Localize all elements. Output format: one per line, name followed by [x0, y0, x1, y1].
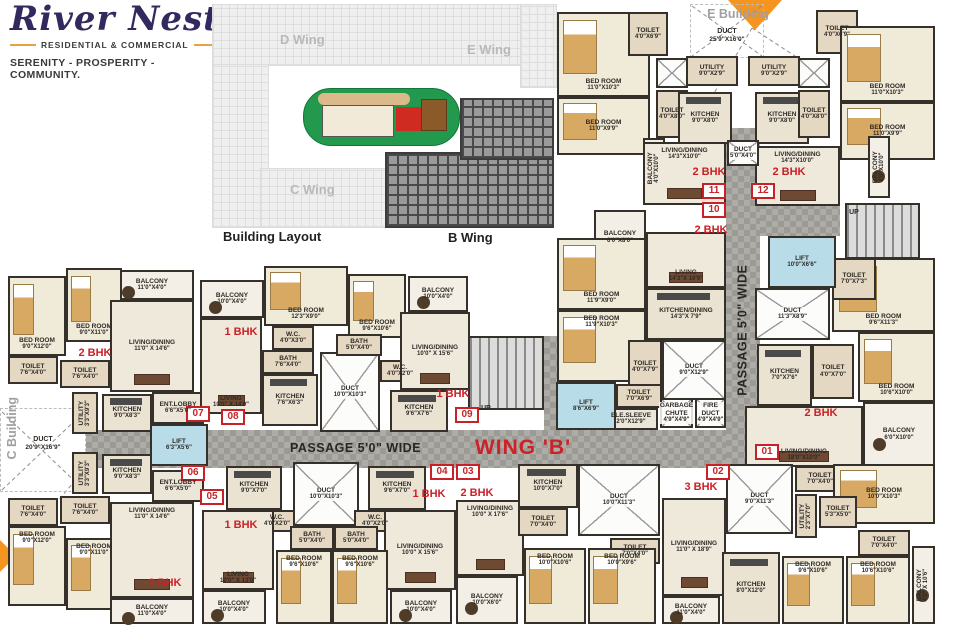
liv-living-dining: LIVING/DINING11'0" X 18'9"	[662, 498, 726, 596]
bal-balcony: BALCONY11'0"X4'0"	[662, 596, 720, 624]
duct-duct: DUCT9'0"X11'3"	[726, 464, 793, 534]
stair	[468, 336, 544, 410]
unit-badge-11: 11	[702, 183, 726, 199]
kit-kitchen: KITCHEN8'0"X12'0"	[722, 552, 780, 624]
duct-garbage-chute: GARBAGE CHUTE4'9"X4'9"	[660, 398, 693, 428]
kit-kitchen: KITCHEN10'0"X7'0"	[518, 464, 578, 508]
toi-w-c: W.C.4'0"X3'0"	[272, 326, 314, 350]
txt-1-bhk: 1 BHK	[430, 387, 476, 401]
unit-badge-12: 12	[751, 183, 775, 199]
toi-utility: UTILITY3'3"X9'3"	[72, 392, 98, 434]
floor-plan: BED ROOM11'0"X10'3"TOILET4'0"X6'9"BED RO…	[0, 0, 957, 625]
unit-badge-09: 09	[455, 407, 479, 423]
txt-up: UP	[476, 404, 496, 415]
liv-living-dining: LIVING/DINING10'0" X 15'6"	[400, 312, 470, 390]
liv-living-dining: LIVING/DINING10'0" X 15'6"	[384, 510, 456, 590]
bal-balcony: BALCONY10'0"X4'0"	[200, 280, 264, 318]
bal-balcony: BALCONY6'0"X10'0"	[863, 402, 935, 467]
bed-bed-room: BED ROOM10'6"X10'0"	[858, 332, 935, 402]
kit-kitchen: KITCHEN9'0"X7'0"	[226, 466, 282, 510]
unit-badge-05: 05	[200, 489, 224, 505]
toi-bath: BATH7'6"X4'0"	[262, 350, 314, 374]
kit-kitchen: KITCHEN7'6"X6'3"	[262, 374, 318, 426]
bal-balcony: BALCONY10'0"X4'0"	[390, 590, 452, 624]
lift-lift: LIFT8'6"X6'9"	[556, 382, 616, 430]
toi-toilet: TOILET7'0"X4'0"	[858, 530, 910, 556]
toi-toilet: TOILET7'0"X4'0"	[518, 508, 568, 536]
toi-toilet: TOILET7'6"X4'0"	[60, 496, 110, 524]
bal-balcony: BALCONY4'0"X10'0"	[868, 136, 890, 198]
toi-utility: UTILITY9'0"X2'9"	[748, 56, 800, 86]
bal-balcony: BALCONY10'0"X6'0"	[456, 576, 518, 624]
kit-kitchen: KITCHEN9'0"X8'3"	[102, 394, 152, 432]
unit-badge-10: 10	[702, 202, 726, 218]
lift-lift: LIFT10'0"X6'6"	[768, 236, 836, 288]
txt-2-bhk: 2 BHK	[764, 165, 814, 179]
bed-bed-room: BED ROOM9'6"X10'6"	[782, 556, 844, 624]
bal-balcony: BALCONY4'0" X 10'6"	[912, 546, 935, 624]
bed-bed-room: BED ROOM11'0"X9'9"	[557, 97, 650, 155]
bal-balcony: BALCONY11'0"X4'0"	[110, 270, 194, 300]
txt-2-bhk: 2 BHK	[796, 406, 846, 420]
txt-1-bhk: 1 BHK	[218, 325, 264, 339]
txt-c-building: C Building	[0, 420, 52, 436]
bed-bed-room: BED ROOM10'0"X9'6"	[588, 548, 656, 624]
duct-fire-duct: FIRE DUCT4'9"X4'9"	[695, 398, 726, 428]
txt-wing-b: WING 'B'	[463, 430, 583, 466]
bed-bed-room: BED ROOM10'6"X10'6"	[846, 556, 910, 624]
kit-kitchen: KITCHEN9'0"X8'0"	[678, 92, 732, 144]
bal-balcony: BALCONY10'0"X4'0"	[408, 276, 468, 312]
bed-bed-room: BED ROOM9'6"X10'6"	[276, 550, 332, 624]
unit-badge-03: 03	[456, 464, 480, 480]
kit-kitchen: KITCHEN9'0"X8'3"	[102, 454, 152, 494]
duct-duct: DUCT11'3"X8'9"	[755, 288, 830, 340]
duct	[656, 58, 688, 88]
txt-3-bhk: 3 BHK	[676, 480, 726, 494]
duct	[798, 58, 830, 88]
toi-toilet: TOILET7'0"X7'3"	[832, 258, 876, 300]
txt-passage-5-0-wide: PASSAGE 5'0" WIDE	[728, 250, 758, 410]
duct-duct: DUCT10'0"X10'3"	[320, 352, 380, 432]
txt-2-bhk: 2 BHK	[452, 486, 502, 500]
bal-balcony: BALCONY11'0"X4'0"	[110, 598, 194, 624]
liv-living-dining: LIVING/DINING10'0" X 17'6"	[456, 500, 524, 576]
toi-bath: BATH5'0"X4'0"	[290, 526, 334, 550]
liv-living: LIVING14'3"X 10'9"	[646, 232, 726, 288]
toi-toilet: TOILET4'0"X7'0"	[812, 344, 854, 399]
txt-passage-5-0-wide: PASSAGE 5'0" WIDE	[288, 436, 423, 460]
toi-utility: UTILITY9'0"X2'9"	[686, 56, 738, 86]
txt-2-bhk: 2 BHK	[70, 346, 120, 360]
unit-badge-04: 04	[430, 464, 454, 480]
floor-plan-poster: River Nest RESIDENTIAL & COMMERCIAL SERE…	[0, 0, 957, 625]
toi-toilet: TOILET7'0"X6'9"	[616, 384, 662, 408]
txt-e-building: E Building	[698, 6, 778, 22]
toi-toilet: TOILET5'3"X5'0"	[819, 496, 857, 528]
toi-bath: BATH5'0"X4'0"	[336, 334, 382, 356]
duct-duct: DUCT9'0"X12'9"	[662, 340, 726, 400]
bed-bed-room: BED ROOM11'9"X9'0"	[557, 238, 646, 310]
unit-badge-08: 08	[221, 409, 245, 425]
txt-2-bhk: 2 BHK	[686, 223, 736, 237]
lift-lift: LIFT6'3"X5'6"	[150, 424, 208, 466]
txt-2-bhk: 2 BHK	[684, 165, 734, 179]
liv-living-dining: LIVING/DINING11'0" X 14'6"	[110, 300, 194, 392]
bed-bed-room: BED ROOM9'6"X10'6"	[348, 274, 406, 338]
toi-utility: UTILITY2'3"X7'0"	[795, 494, 817, 538]
txt-duct: DUCT25'9"X16'0"	[692, 24, 762, 48]
unit-badge-02: 02	[706, 464, 730, 480]
toi-utility: UTILITY3'3"X9'3"	[72, 452, 98, 494]
bed-bed-room: BED ROOM11'0"X10'3"	[840, 26, 935, 102]
bed-bed-room: BED ROOM9'6"X10'6"	[332, 550, 388, 624]
bed-bed-room: BED ROOM9'0"X12'0"	[8, 526, 66, 606]
toi-toilet: TOILET7'6"X4'0"	[8, 356, 58, 384]
duct-duct: DUCT10'0"X10'3"	[293, 462, 359, 526]
kit-kitchen: KITCHEN7'0"X7'6"	[757, 344, 812, 406]
toi-toilet: TOILET4'0"X6'9"	[628, 12, 668, 56]
bed-bed-room: BED ROOM10'0"X10'6"	[524, 548, 586, 624]
toi-bath: BATH5'0"X4'0"	[334, 526, 378, 550]
bed-bed-room: BED ROOM9'0"X12'0"	[8, 276, 66, 356]
duct-duct: DUCT10'0"X11'3"	[578, 464, 660, 536]
bal-balcony: BALCONY10'0"X4'0"	[202, 590, 266, 624]
duct-duct: DUCT5'0"X4'0"	[727, 140, 759, 166]
toi-toilet: TOILET4'0"X8'0"	[798, 90, 830, 138]
bed-bed-room: BED ROOM12'3"X9'0"	[264, 266, 348, 326]
kit-kitchen-dining: KITCHEN/DINING14'3"X 7'9"	[646, 288, 726, 340]
txt-1-bhk: 1 BHK	[406, 487, 452, 501]
txt-up: UP	[845, 208, 863, 219]
toi-toilet: TOILET7'6"X4'0"	[60, 360, 110, 388]
psg	[760, 203, 840, 236]
txt-1-bhk: 1 BHK	[218, 518, 264, 532]
unit-badge-01: 01	[755, 444, 779, 460]
toi-toilet: TOILET7'6"X4'0"	[8, 498, 58, 526]
txt-2-bhk: 2 BHK	[140, 576, 190, 590]
